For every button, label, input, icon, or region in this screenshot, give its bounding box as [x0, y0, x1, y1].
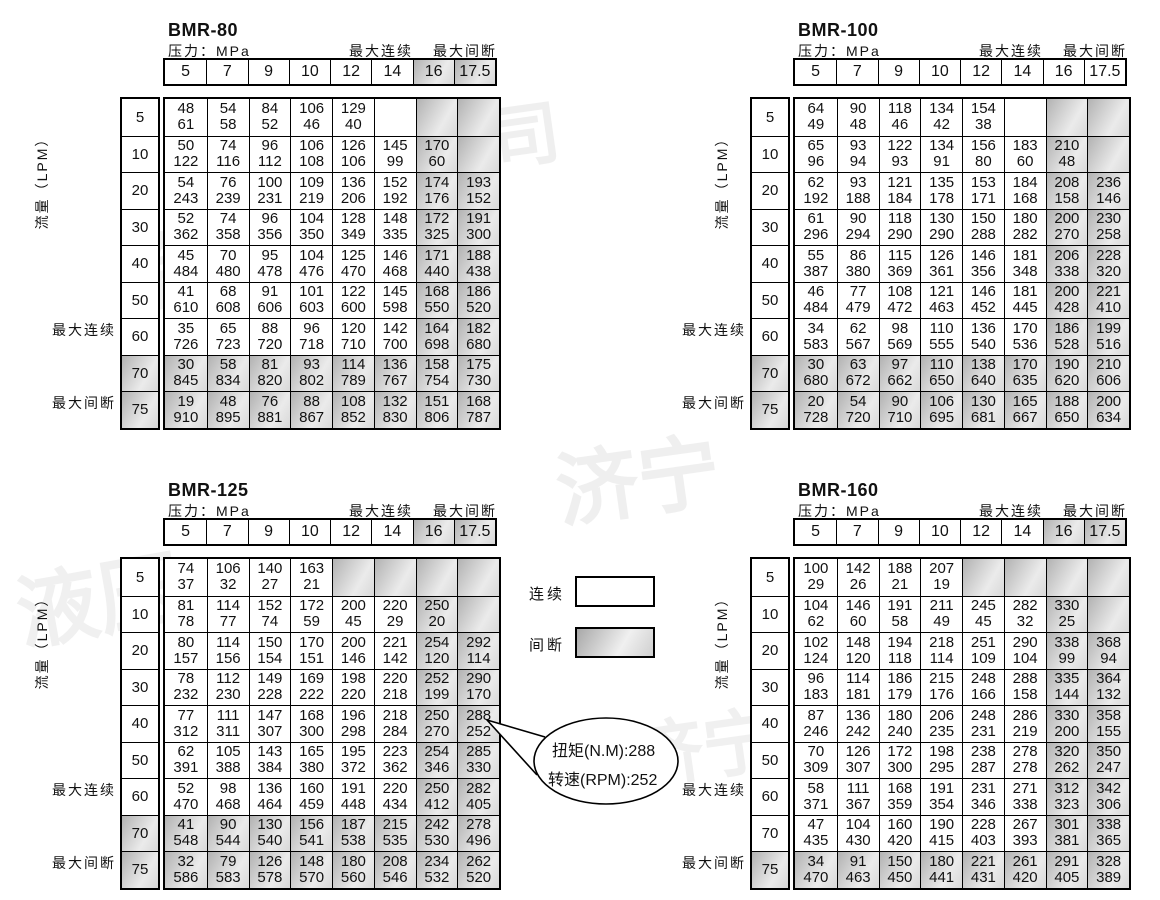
torque-speed-cell: 320262 [1046, 742, 1088, 779]
torque-speed-cell: 200270 [1046, 209, 1088, 246]
torque-value: 97 [892, 357, 909, 373]
speed-value: 154 [257, 651, 282, 667]
torque-speed-cell: 220218 [374, 669, 416, 706]
torque-value: 65 [220, 321, 237, 337]
speed-value: 480 [216, 264, 241, 280]
torque-value: 164 [424, 321, 449, 337]
torque-speed-cell: 248166 [962, 669, 1004, 706]
speed-value: 389 [1096, 870, 1121, 886]
torque-value: 46 [808, 284, 825, 300]
speed-value: 60 [850, 614, 867, 630]
torque-speed-cell: 81820 [249, 355, 291, 392]
flow-row-header: 70 [122, 815, 158, 852]
speed-value: 361 [929, 264, 954, 280]
torque-value: 105 [216, 744, 241, 760]
torque-speed-cell: 114789 [332, 355, 374, 392]
speed-value: 38 [975, 117, 992, 133]
speed-value: 25 [1059, 614, 1076, 630]
speed-value: 312 [173, 724, 198, 740]
torque-value: 223 [383, 744, 408, 760]
torque-value: 335 [1054, 671, 1079, 687]
torque-value: 91 [262, 284, 279, 300]
speed-value: 37 [178, 577, 195, 593]
torque-value: 330 [1054, 598, 1079, 614]
torque-speed-cell: 168550 [416, 282, 458, 319]
speed-value: 323 [1054, 797, 1079, 813]
speed-value: 158 [1054, 191, 1079, 207]
torque-value: 126 [341, 138, 366, 154]
speed-value: 48 [1059, 154, 1076, 170]
torque-speed-cell: 148120 [837, 632, 879, 669]
flow-row-header: 40 [122, 245, 158, 282]
speed-value: 806 [424, 410, 449, 426]
speed-value: 222 [299, 687, 324, 703]
torque-speed-cell [1087, 99, 1129, 136]
torque-value: 152 [257, 598, 282, 614]
pressure-col-header: 7 [206, 60, 247, 84]
torque-value: 79 [220, 854, 237, 870]
torque-value: 111 [217, 708, 240, 724]
speed-value: 290 [929, 227, 954, 243]
torque-speed-cell: 14599 [374, 136, 416, 173]
torque-speed-cell: 114156 [207, 632, 249, 669]
torque-value: 187 [341, 817, 366, 833]
speed-value: 49 [933, 614, 950, 630]
speed-value: 93 [892, 154, 909, 170]
speed-value: 541 [299, 833, 324, 849]
torque-speed-cell: 88720 [249, 318, 291, 355]
speed-value: 235 [929, 724, 954, 740]
speed-value: 720 [257, 337, 282, 353]
speed-value: 48 [850, 117, 867, 133]
speed-value: 393 [1013, 833, 1038, 849]
torque-speed-cell: 25020 [416, 596, 458, 633]
speed-value: 218 [383, 687, 408, 703]
torque-value: 170 [424, 138, 449, 154]
speed-value: 662 [887, 373, 912, 389]
speed-value: 430 [846, 833, 871, 849]
torque-value: 180 [929, 854, 954, 870]
pressure-col-header: 17.5 [454, 520, 495, 544]
max-continuous-row-label: 最大连续 [20, 780, 116, 800]
torque-speed-cell: 188650 [1046, 391, 1088, 428]
torque-value: 154 [971, 101, 996, 117]
torque-speed-grid: 6449904811846134421543865969394122931349… [793, 97, 1131, 430]
torque-value: 238 [971, 744, 996, 760]
speed-value: 384 [257, 760, 282, 776]
torque-speed-cell: 221431 [962, 851, 1004, 888]
speed-value: 20 [429, 614, 446, 630]
speed-value: 438 [466, 264, 491, 280]
torque-value: 191 [887, 598, 912, 614]
speed-value: 26 [850, 577, 867, 593]
torque-value: 104 [846, 817, 871, 833]
torque-speed-cell: 149228 [249, 669, 291, 706]
speed-value: 391 [173, 760, 198, 776]
torque-value: 251 [971, 635, 996, 651]
torque-speed-cell: 47435 [795, 815, 837, 852]
torque-value: 338 [1054, 635, 1079, 651]
torque-speed-cell: 126578 [249, 851, 291, 888]
speed-value: 52 [262, 117, 279, 133]
legend-continuous-label: 连续 [503, 583, 565, 604]
speed-value: 192 [383, 191, 408, 207]
speed-value: 206 [341, 191, 366, 207]
torque-speed-cell [457, 559, 499, 596]
flow-row-header: 60 [122, 778, 158, 815]
torque-speed-cell: 10462 [795, 596, 837, 633]
table-panel-BMR-80: BMR-80压力：MPa最大连续最大间断流量（LPM）最大连续最大间断57910… [20, 20, 505, 440]
speed-value: 188 [846, 191, 871, 207]
torque-value: 254 [424, 635, 449, 651]
torque-speed-cell: 111311 [207, 705, 249, 742]
speed-value: 60 [1017, 154, 1034, 170]
speed-value: 176 [424, 191, 449, 207]
speed-value: 306 [1096, 797, 1121, 813]
flow-header-column: 51020304050607075 [750, 97, 790, 430]
speed-value: 49 [808, 117, 825, 133]
torque-speed-cell: 208158 [1046, 172, 1088, 209]
torque-value: 98 [892, 321, 909, 337]
flow-row-header: 30 [122, 669, 158, 706]
torque-value: 221 [383, 635, 408, 651]
speed-value: 262 [1054, 760, 1079, 776]
torque-speed-cell: 364132 [1087, 669, 1129, 706]
speed-value: 754 [424, 373, 449, 389]
torque-speed-cell: 171440 [416, 245, 458, 282]
torque-value: 130 [257, 817, 282, 833]
torque-speed-cell: 104476 [290, 245, 332, 282]
torque-speed-cell: 111367 [837, 778, 879, 815]
speed-value: 672 [846, 373, 871, 389]
pressure-col-header: 9 [878, 520, 919, 544]
torque-speed-cell: 15438 [962, 99, 1004, 136]
torque-value: 200 [1054, 211, 1079, 227]
speed-value: 144 [1054, 687, 1079, 703]
torque-speed-cell: 146356 [962, 245, 1004, 282]
torque-value: 100 [803, 561, 828, 577]
speed-value: 176 [929, 687, 954, 703]
torque-value: 146 [971, 248, 996, 264]
torque-speed-cell: 21149 [920, 596, 962, 633]
torque-speed-cell: 174176 [416, 172, 458, 209]
speed-value: 239 [216, 191, 241, 207]
torque-speed-cell: 231346 [962, 778, 1004, 815]
torque-speed-cell: 12293 [879, 136, 921, 173]
speed-value: 420 [1013, 870, 1038, 886]
torque-speed-cell: 34470 [795, 851, 837, 888]
torque-speed-cell: 101603 [290, 282, 332, 319]
speed-value: 62 [808, 614, 825, 630]
torque-speed-grid: 1002914226188212071910462146601915821149… [793, 557, 1131, 890]
torque-speed-cell: 132830 [374, 391, 416, 428]
torque-speed-cell: 105388 [207, 742, 249, 779]
speed-value: 484 [803, 300, 828, 316]
torque-value: 108 [341, 394, 366, 410]
torque-speed-cell: 147307 [249, 705, 291, 742]
speed-value: 21 [303, 577, 320, 593]
torque-value: 218 [929, 635, 954, 651]
torque-speed-cell: 187538 [332, 815, 374, 852]
torque-speed-cell: 12940 [332, 99, 374, 136]
torque-speed-cell [1046, 99, 1088, 136]
torque-value: 320 [1054, 744, 1079, 760]
torque-speed-cell: 180282 [1004, 209, 1046, 246]
torque-speed-cell: 206235 [920, 705, 962, 742]
torque-value: 136 [257, 781, 282, 797]
torque-speed-cell: 165667 [1004, 391, 1046, 428]
torque-value: 215 [383, 817, 408, 833]
torque-speed-cell: 221410 [1087, 282, 1129, 319]
speed-value: 441 [929, 870, 954, 886]
torque-value: 110 [930, 321, 954, 337]
pressure-col-header: 17.5 [1084, 520, 1125, 544]
torque-value: 93 [850, 175, 867, 191]
torque-speed-cell: 96183 [795, 669, 837, 706]
torque-speed-cell: 250270 [416, 705, 458, 742]
flow-row-header: 60 [122, 318, 158, 355]
torque-value: 170 [299, 635, 324, 651]
torque-value: 65 [808, 138, 825, 154]
speed-value: 440 [424, 264, 449, 280]
speed-value: 608 [216, 300, 241, 316]
flow-row-header: 20 [122, 632, 158, 669]
speed-value: 635 [1013, 373, 1038, 389]
speed-value: 555 [929, 337, 954, 353]
torque-value: 54 [220, 101, 237, 117]
torque-speed-cell: 175730 [457, 355, 499, 392]
torque-value: 262 [466, 854, 491, 870]
speed-value: 290 [887, 227, 912, 243]
speed-value: 698 [424, 337, 449, 353]
torque-speed-cell: 278278 [1004, 742, 1046, 779]
torque-value: 77 [850, 284, 867, 300]
max-intermittent-row-label: 最大间断 [20, 393, 116, 413]
torque-speed-cell: 13442 [920, 99, 962, 136]
speed-value: 787 [466, 410, 491, 426]
torque-value: 221 [1096, 284, 1121, 300]
torque-value: 208 [383, 854, 408, 870]
flow-axis-label: 流量（LPM） [712, 585, 728, 695]
torque-value: 136 [383, 357, 408, 373]
speed-value: 448 [341, 797, 366, 813]
torque-value: 168 [424, 284, 449, 300]
speed-value: 168 [1013, 191, 1038, 207]
pressure-col-header: 5 [795, 520, 836, 544]
torque-speed-cell: 145598 [374, 282, 416, 319]
torque-speed-cell: 186179 [879, 669, 921, 706]
torque-value: 211 [930, 598, 954, 614]
torque-speed-cell: 77479 [837, 282, 879, 319]
torque-speed-cell: 20728 [795, 391, 837, 428]
torque-value: 199 [1096, 321, 1121, 337]
torque-value: 90 [850, 101, 867, 117]
torque-value: 130 [971, 394, 996, 410]
torque-speed-cell: 128349 [332, 209, 374, 246]
torque-speed-cell: 248231 [962, 705, 1004, 742]
speed-value: 61 [178, 117, 195, 133]
torque-value: 220 [383, 598, 408, 614]
torque-value: 182 [466, 321, 491, 337]
torque-value: 288 [1013, 671, 1038, 687]
flow-row-header: 20 [122, 172, 158, 209]
torque-value: 170 [1013, 321, 1038, 337]
torque-speed-cell: 218284 [374, 705, 416, 742]
torque-value: 278 [1013, 744, 1038, 760]
torque-speed-cell: 190620 [1046, 355, 1088, 392]
speed-value: 367 [846, 797, 871, 813]
torque-value: 163 [299, 561, 324, 577]
table-title: BMR-160 [798, 480, 879, 501]
torque-speed-cell: 52362 [165, 209, 207, 246]
torque-speed-cell: 17259 [290, 596, 332, 633]
torque-value: 215 [929, 671, 954, 687]
speed-value: 106 [341, 154, 366, 170]
speed-value: 428 [1054, 300, 1079, 316]
speed-value: 146 [1096, 191, 1121, 207]
speed-value: 403 [971, 833, 996, 849]
speed-value: 472 [887, 300, 912, 316]
torque-value: 104 [299, 248, 324, 264]
speed-value: 45 [345, 614, 362, 630]
torque-value: 126 [846, 744, 871, 760]
speed-value: 295 [929, 760, 954, 776]
torque-speed-cell: 190415 [920, 815, 962, 852]
torque-value: 136 [971, 321, 996, 337]
torque-value: 156 [971, 138, 996, 154]
torque-speed-cell: 62391 [165, 742, 207, 779]
speed-value: 59 [303, 614, 320, 630]
speed-value: 219 [1013, 724, 1038, 740]
torque-speed-cell [457, 596, 499, 633]
speed-value: 570 [299, 870, 324, 886]
torque-speed-cell: 136540 [962, 318, 1004, 355]
max-continuous-row-label: 最大连续 [650, 320, 746, 340]
torque-speed-cell: 87246 [795, 705, 837, 742]
speed-value: 230 [216, 687, 241, 703]
torque-speed-cell: 10646 [290, 99, 332, 136]
torque-speed-cell: 19910 [165, 391, 207, 428]
speed-value: 118 [888, 651, 912, 667]
speed-value: 298 [341, 724, 366, 740]
torque-value: 134 [929, 138, 954, 154]
pressure-header-row: 5791012141617.5 [163, 58, 497, 86]
torque-value: 80 [178, 635, 195, 651]
pressure-header-row: 5791012141617.5 [163, 518, 497, 546]
torque-value: 200 [1054, 284, 1079, 300]
torque-speed-cell: 96718 [290, 318, 332, 355]
torque-speed-cell: 208546 [374, 851, 416, 888]
torque-speed-cell: 122600 [332, 282, 374, 319]
speed-value: 278 [1013, 760, 1038, 776]
torque-value: 88 [262, 321, 279, 337]
torque-value: 34 [808, 321, 825, 337]
torque-speed-cell: 180441 [920, 851, 962, 888]
speed-value: 380 [299, 760, 324, 776]
speed-value: 300 [466, 227, 491, 243]
torque-speed-cell: 199516 [1087, 318, 1129, 355]
torque-speed-cell: 126106 [332, 136, 374, 173]
torque-speed-cell: 55387 [795, 245, 837, 282]
pressure-col-header: 5 [165, 520, 206, 544]
pressure-col-header: 7 [206, 520, 247, 544]
speed-value: 183 [803, 687, 828, 703]
callout-speed-value: 转速(RPM):252 [548, 766, 657, 790]
torque-value: 30 [178, 357, 195, 373]
torque-speed-cell [1004, 559, 1046, 596]
torque-speed-cell: 151806 [416, 391, 458, 428]
torque-speed-cell: 6449 [795, 99, 837, 136]
speed-value: 583 [803, 337, 828, 353]
speed-value: 91 [933, 154, 950, 170]
torque-speed-cell: 98569 [879, 318, 921, 355]
torque-speed-cell: 180560 [332, 851, 374, 888]
torque-speed-cell: 191448 [332, 778, 374, 815]
torque-value: 196 [341, 708, 366, 724]
speed-value: 270 [1054, 227, 1079, 243]
torque-speed-cell: 9394 [837, 136, 879, 173]
speed-value: 718 [299, 337, 324, 353]
torque-value: 171 [424, 248, 449, 264]
torque-speed-cell [1087, 136, 1129, 173]
speed-value: 228 [257, 687, 282, 703]
speed-value: 567 [846, 337, 871, 353]
table-panel-BMR-125: BMR-125压力：MPa最大连续最大间断流量（LPM）最大连续最大间断5791… [20, 480, 505, 900]
torque-value: 200 [341, 635, 366, 651]
torque-speed-grid: 4861545884521064612940501227411696112106… [163, 97, 501, 430]
torque-value: 121 [929, 284, 954, 300]
torque-value: 114 [341, 357, 365, 373]
torque-value: 175 [466, 357, 491, 373]
torque-speed-cell: 78232 [165, 669, 207, 706]
torque-value: 220 [383, 671, 408, 687]
torque-speed-cell: 68608 [207, 282, 249, 319]
speed-value: 124 [803, 651, 828, 667]
flow-row-header: 70 [752, 355, 788, 392]
speed-value: 767 [383, 373, 408, 389]
pressure-col-header: 5 [795, 60, 836, 84]
torque-speed-cell: 158754 [416, 355, 458, 392]
torque-speed-cell: 46484 [795, 282, 837, 319]
torque-value: 95 [262, 248, 279, 264]
flow-row-header: 30 [752, 669, 788, 706]
torque-value: 250 [424, 708, 449, 724]
speed-value: 586 [173, 870, 198, 886]
speed-value: 452 [971, 300, 996, 316]
torque-value: 96 [808, 671, 825, 687]
torque-value: 135 [929, 175, 954, 191]
speed-value: 720 [846, 410, 871, 426]
torque-speed-cell: 18821 [879, 559, 921, 596]
speed-value: 300 [887, 760, 912, 776]
speed-value: 178 [929, 191, 954, 207]
torque-value: 96 [262, 138, 279, 154]
torque-value: 54 [850, 394, 867, 410]
torque-speed-cell: 180240 [879, 705, 921, 742]
speed-value: 171 [971, 191, 996, 207]
max-continuous-row-label: 最大连续 [20, 320, 116, 340]
speed-value: 362 [383, 760, 408, 776]
torque-speed-cell: 290104 [1004, 632, 1046, 669]
speed-value: 142 [383, 651, 408, 667]
torque-speed-cell: 254120 [416, 632, 458, 669]
speed-value: 27 [262, 577, 279, 593]
torque-speed-cell: 110650 [920, 355, 962, 392]
torque-speed-cell: 70480 [207, 245, 249, 282]
flow-header-column: 51020304050607075 [120, 557, 160, 890]
torque-value: 282 [1013, 598, 1038, 614]
torque-value: 190 [929, 817, 954, 833]
